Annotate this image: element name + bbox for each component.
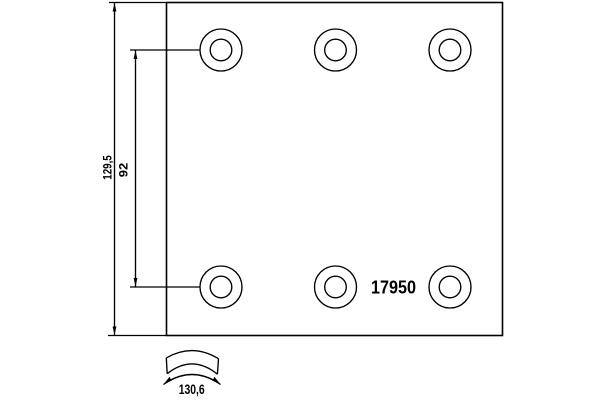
svg-text:17950: 17950 <box>371 277 416 298</box>
svg-text:130,6: 130,6 <box>179 382 205 397</box>
svg-text:129,5: 129,5 <box>100 155 114 180</box>
svg-text:92: 92 <box>116 162 130 177</box>
